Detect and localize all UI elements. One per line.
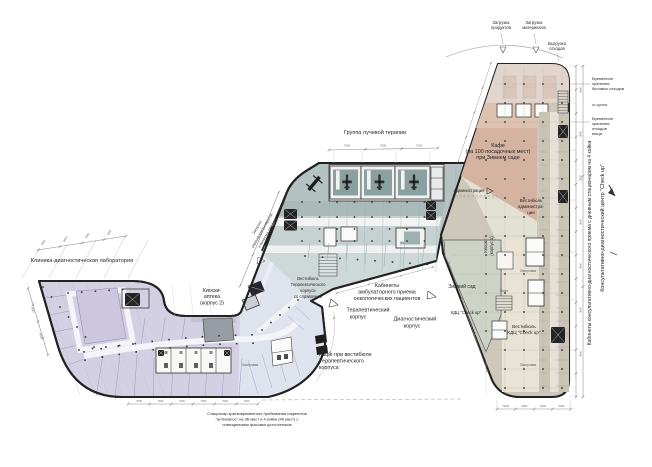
svg-text:6000: 6000	[540, 404, 546, 408]
svg-text:Лифт: Лифт	[500, 289, 509, 293]
svg-text:Терапевтический: Терапевтический	[346, 307, 389, 314]
svg-text:Вестибюль: Вестибюль	[297, 276, 319, 281]
svg-text:пищи: пищи	[592, 131, 602, 136]
svg-text:3600: 3600	[579, 131, 583, 137]
svg-text:Вестибюль: Вестибюль	[520, 198, 543, 203]
svg-text:3600: 3600	[579, 351, 583, 357]
svg-text:7200: 7200	[344, 144, 351, 148]
svg-text:помещениями фасовки цитостатик: помещениями фасовки цитостатиков	[222, 422, 291, 427]
svg-text:3600: 3600	[579, 87, 583, 93]
svg-text:амбулаторного приема: амбулаторного приема	[358, 290, 416, 296]
svg-text:Смотровая: Смотровая	[242, 363, 259, 367]
svg-text:7200: 7200	[416, 144, 423, 148]
svg-text:7000: 7000	[136, 399, 142, 403]
svg-text:отходов: отходов	[549, 46, 565, 51]
svg-text:Кабинеты: Кабинеты	[375, 283, 400, 289]
svg-text:Консультативно-диагностический: Консультативно-диагностический центр "Ch…	[599, 164, 606, 292]
svg-text:Смотровая: Смотровая	[520, 363, 537, 367]
svg-text:3600: 3600	[579, 175, 583, 181]
svg-text:Клиника-диагностическая лабора: Клиника-диагностическая лаборатория	[31, 258, 133, 264]
svg-text:Группа лучевой терапии: Группа лучевой терапии	[344, 129, 406, 136]
svg-text:корпус: корпус	[350, 315, 367, 321]
svg-text:корпуса: корпуса	[319, 365, 339, 371]
svg-text:ции: ции	[527, 210, 535, 215]
svg-text:6000: 6000	[503, 404, 509, 408]
svg-text:продуктов: продуктов	[491, 25, 511, 30]
svg-text:Администрация: Администрация	[454, 188, 485, 193]
svg-text:Вестибюль: Вестибюль	[512, 324, 536, 329]
svg-text:6000: 6000	[522, 404, 528, 408]
svg-text:из здания: из здания	[592, 103, 608, 107]
svg-text:Киоски: Киоски	[483, 239, 488, 253]
svg-text:КДЦ "Check up": КДЦ "Check up"	[451, 310, 482, 315]
svg-text:материалов: материалов	[522, 25, 546, 30]
svg-text:7000: 7000	[222, 399, 228, 403]
svg-text:"ambulance" на 36 мест и 4 кой: "ambulance" на 36 мест и 4 койки (40 мес…	[216, 417, 299, 422]
svg-text:Кабинеты консультативно-диагно: Кабинеты консультативно-диагностического…	[586, 141, 593, 346]
svg-text:7000: 7000	[244, 399, 250, 403]
svg-text:при Зимнем саде: при Зимнем саде	[476, 155, 519, 161]
svg-text:КДЦ "Check up": КДЦ "Check up"	[507, 330, 540, 335]
svg-text:3600: 3600	[579, 263, 583, 269]
svg-text:(корпус 2): (корпус 2)	[200, 301, 224, 307]
svg-text:администра-: администра-	[518, 204, 544, 209]
svg-text:7000: 7000	[158, 399, 164, 403]
svg-text:3600: 3600	[579, 307, 583, 313]
svg-text:Зимний сад: Зимний сад	[448, 283, 475, 290]
svg-text:6000: 6000	[559, 404, 565, 408]
svg-text:3600: 3600	[579, 219, 583, 225]
svg-text:Терапевтического: Терапевтического	[291, 282, 327, 287]
svg-text:Смотровая: Смотровая	[520, 269, 537, 273]
svg-text:со справочной: со справочной	[294, 294, 323, 299]
svg-text:аптека: аптека	[204, 294, 220, 300]
svg-text:Кафе при вестибюле: Кафе при вестибюле	[319, 352, 372, 358]
svg-text:7200: 7200	[380, 144, 387, 148]
svg-text:корпуса: корпуса	[300, 288, 316, 293]
svg-text:корпус: корпус	[404, 324, 421, 330]
svg-text:Терапевтического: Терапевтического	[319, 359, 364, 365]
svg-text:(корпус 1): (корпус 1)	[489, 236, 494, 256]
svg-text:Диагностический: Диагностический	[394, 316, 437, 323]
svg-text:7000: 7000	[201, 399, 207, 403]
svg-text:7000: 7000	[179, 399, 185, 403]
svg-text:онкологических пациентов: онкологических пациентов	[354, 296, 421, 302]
svg-text:Стационар кратковременного пре: Стационар кратковременного пребывания па…	[207, 411, 307, 416]
svg-text:бытовых отходов: бытовых отходов	[592, 86, 624, 91]
